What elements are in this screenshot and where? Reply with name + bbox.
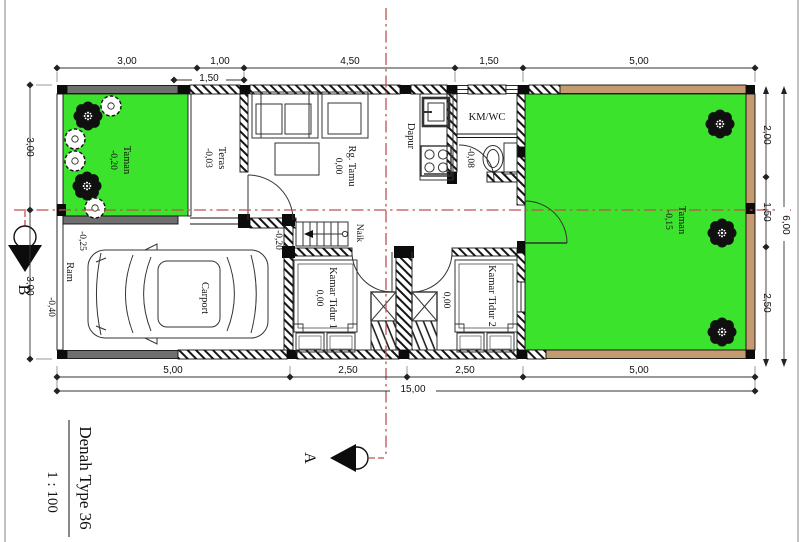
bush-icon (65, 129, 85, 149)
level-ram: -0,25 (77, 231, 87, 251)
dim-bottom-4: 5,00 (629, 365, 649, 376)
level-km-wc: -0,08 (465, 148, 475, 168)
dim-top-sub: 1,50 (199, 73, 219, 84)
label-taman-right: Taman (676, 206, 687, 235)
drawing-title: Denah Type 36 (76, 426, 95, 529)
dim-top-sub: 1,50 (170, 72, 247, 84)
bed-1-icon (294, 260, 357, 352)
level-carport-edge: -0,20 (273, 230, 283, 250)
dim-top-1: 3,00 (117, 56, 137, 67)
dim-bottom: 5,00 2,50 2,50 5,00 15,00 (53, 365, 758, 395)
dim-left-1: 3,00 (24, 137, 35, 157)
flower-icon (73, 172, 102, 201)
dim-top-2: 1,00 (210, 56, 230, 67)
bed-2-icon (455, 260, 517, 352)
dim-right: 2,00 1,50 2,50 6,00 (761, 86, 791, 367)
title-block: Denah Type 36 1 : 100 (44, 420, 95, 537)
dim-bottom-3: 2,50 (455, 365, 475, 376)
label-dapur: Dapur (405, 123, 416, 150)
flower-icon (708, 219, 737, 248)
floor-plan-sheet: B A Taman -0,20 Teras -0,03 Rg. Tamu 0,0… (0, 0, 804, 542)
toilet-icon (483, 143, 517, 174)
dim-bottom-total: 15,00 (400, 384, 425, 395)
floor-plan-drawing: B A Taman -0,20 Teras -0,03 Rg. Tamu 0,0… (0, 0, 804, 542)
level-rg-tamu: 0,00 (333, 158, 343, 175)
level-kamar-1: 0,00 (314, 290, 324, 307)
dim-bottom-2: 2,50 (338, 365, 358, 376)
level-ram-outer: -0,40 (46, 297, 56, 317)
label-ram: Ram (64, 262, 75, 282)
level-taman-right: -0,15 (663, 210, 673, 230)
label-taman-left: Taman (121, 146, 132, 175)
dim-right-2: 1,50 (761, 202, 772, 222)
drawing-scale: 1 : 100 (44, 471, 60, 513)
dim-right-total: 6,00 (780, 215, 791, 235)
label-teras: Teras (216, 147, 227, 170)
dim-left: 3,00 3,00 (24, 81, 52, 362)
section-label-a: A (301, 452, 318, 464)
section-marker-a: A (301, 444, 368, 472)
flower-icon (706, 110, 735, 139)
dim-right-1: 2,00 (761, 125, 772, 145)
bush-icon (65, 151, 85, 171)
flower-icon (74, 102, 103, 131)
dim-top-3: 4,50 (340, 56, 360, 67)
label-naik: Naik (354, 224, 364, 243)
dim-top-5: 5,00 (629, 56, 649, 67)
car-icon (88, 244, 268, 344)
label-kamar-2: Kamar Tidur 2 (486, 265, 497, 327)
level-taman-left: -0,20 (108, 150, 118, 170)
label-km-wc: KM/WC (469, 112, 506, 123)
dim-left-2: 3,00 (24, 276, 35, 296)
level-hall: 0,00 (441, 292, 451, 309)
bush-icon (85, 198, 105, 218)
stairs-icon (296, 222, 348, 246)
dim-top: 3,00 1,00 4,50 1,50 5,00 (53, 56, 758, 72)
flower-icon (708, 318, 737, 347)
dim-bottom-1: 5,00 (163, 365, 183, 376)
dim-top-4: 1,50 (479, 56, 499, 67)
label-kamar-1: Kamar Tidur 1 (327, 267, 338, 329)
label-carport: Carport (199, 282, 210, 314)
level-teras: -0,03 (203, 148, 213, 168)
stove-icon (421, 146, 451, 176)
label-rg-tamu: Rg. Tamu (346, 145, 357, 187)
dim-right-3: 2,50 (761, 293, 772, 313)
bush-icon (101, 96, 121, 116)
